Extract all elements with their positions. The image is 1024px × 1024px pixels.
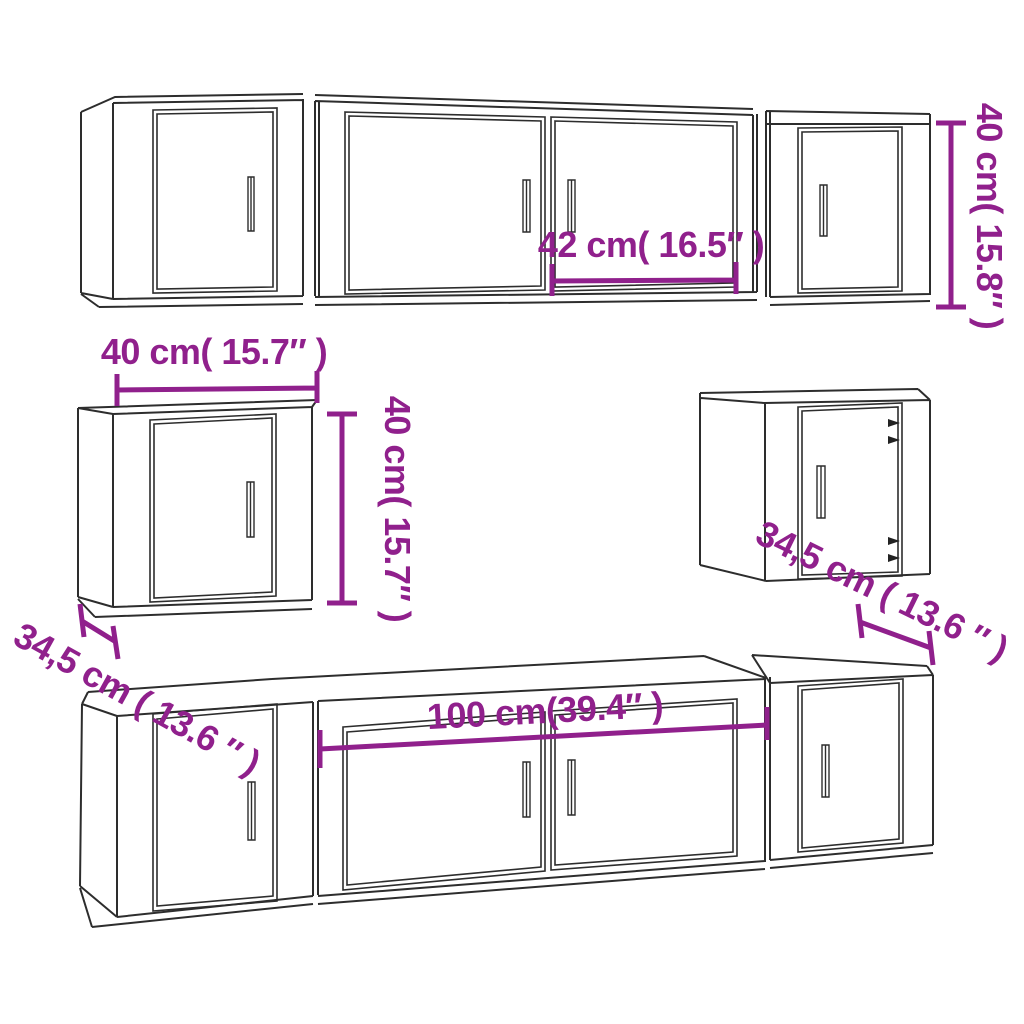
cabinet-middle-left xyxy=(78,400,317,617)
dimension-line-top-row-height xyxy=(936,123,966,307)
door-handle xyxy=(248,177,254,231)
cabinet-door xyxy=(153,108,277,293)
cabinet-top-right xyxy=(766,111,930,305)
door-handle xyxy=(248,782,255,840)
cabinet-door-left xyxy=(345,112,545,294)
door-handle xyxy=(817,466,825,518)
cabinet-door xyxy=(798,127,902,293)
door-handle xyxy=(523,762,530,817)
cabinet-bottom-right xyxy=(752,655,933,868)
door-handle xyxy=(820,185,827,236)
dimension-label-top-row-height: 40 cm( 15.8″ ) xyxy=(971,103,1007,329)
door-handle xyxy=(247,482,254,537)
cabinet-carcass xyxy=(766,111,930,305)
cabinet-door xyxy=(150,414,276,602)
cabinet-door xyxy=(798,679,903,852)
cabinet-top-middle xyxy=(315,95,757,305)
product-dimension-diagram: 42 cm( 16.5″ ) 40 cm( 15.8″ ) 40 cm( 15.… xyxy=(0,0,1024,1024)
cabinet-carcass xyxy=(78,400,317,617)
cabinet-carcass xyxy=(81,94,303,307)
door-handle xyxy=(822,745,829,797)
cabinet-carcass xyxy=(315,95,757,305)
door-handle xyxy=(568,760,575,815)
cabinet-top-left xyxy=(81,94,303,307)
dimension-line-wall-cabinet-height xyxy=(327,414,357,603)
cabinet-line-art xyxy=(0,0,1024,1024)
door-handle xyxy=(523,180,530,232)
dimension-label-top-door-width: 42 cm( 16.5″ ) xyxy=(538,227,764,263)
dimension-label-wall-cabinet-width: 40 cm( 15.7″ ) xyxy=(101,334,327,370)
dimension-label-wall-cabinet-height: 40 cm( 15.7″ ) xyxy=(379,396,415,622)
